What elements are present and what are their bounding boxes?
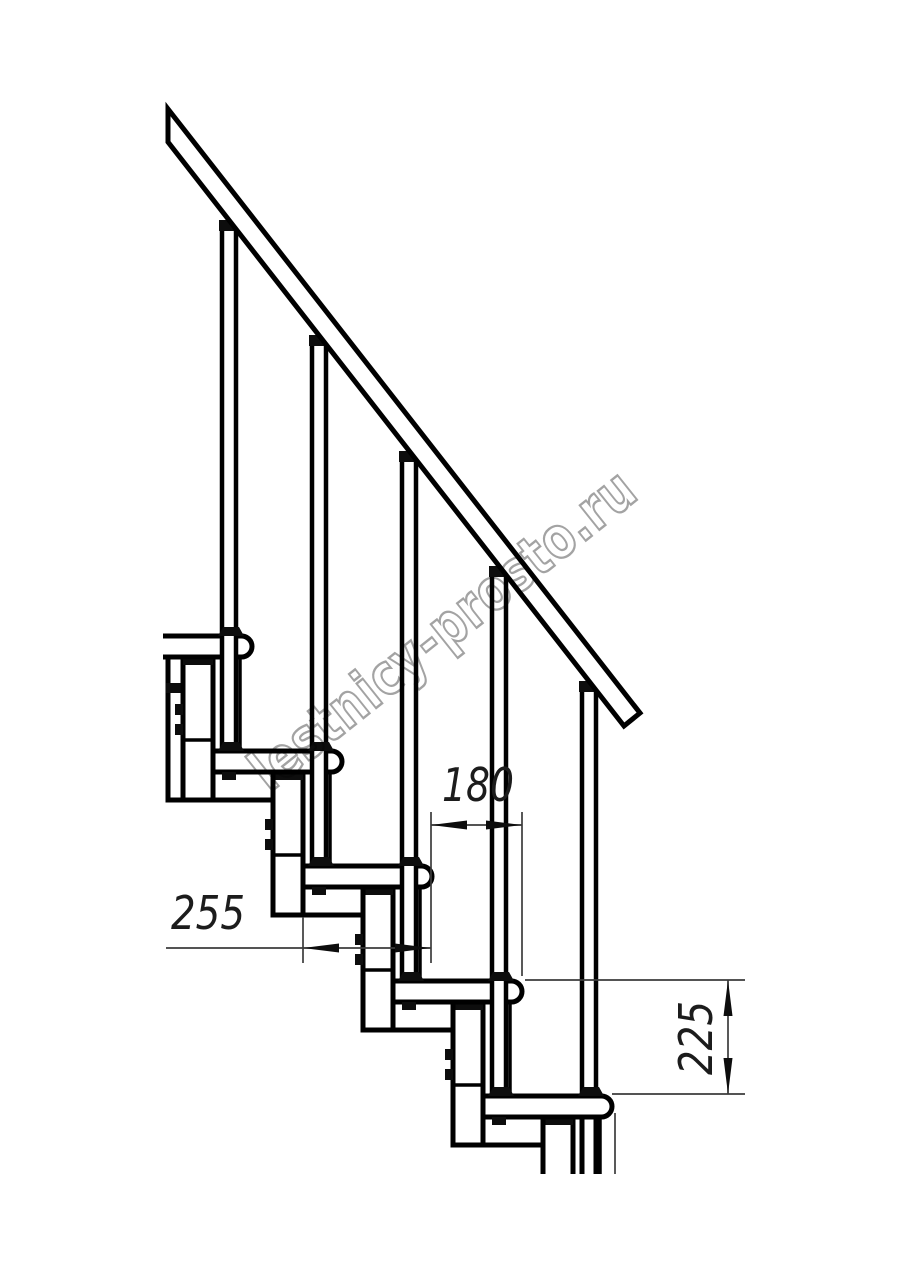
bolt-icon <box>265 819 273 830</box>
bolt-icon <box>265 839 273 850</box>
dimension-value-going: 180 <box>442 758 514 812</box>
rod-nut <box>222 772 236 780</box>
column-body <box>363 887 393 1030</box>
rod-nut <box>402 1002 416 1010</box>
tread-5 <box>483 1096 612 1117</box>
baluster-rod <box>582 685 596 1096</box>
column-body <box>453 1002 483 1145</box>
arrow-left-icon <box>303 944 339 953</box>
baluster-2 <box>308 335 334 895</box>
rod-nut <box>312 887 326 895</box>
bolt-icon <box>445 1069 453 1080</box>
bolt-icon <box>445 1049 453 1060</box>
technical-drawing-page: 180 255 225 lestnicy-prosto.ru <box>0 0 914 1280</box>
bolt-icon <box>355 934 363 945</box>
dimension-value-tread-depth: 255 <box>171 886 245 940</box>
arrow-up-icon <box>724 980 733 1016</box>
support-column-1 <box>175 657 213 800</box>
dimension-going: 180 <box>431 758 522 976</box>
dimension-value-step-rise: 225 <box>669 1001 723 1075</box>
bolt-icon <box>355 954 363 965</box>
baluster-1 <box>218 220 244 780</box>
bolt-icon <box>175 724 183 735</box>
baluster-rod <box>402 455 416 981</box>
arrow-down-icon <box>724 1058 733 1094</box>
baluster-3 <box>398 451 424 1010</box>
baluster-rod <box>312 339 326 866</box>
dimension-step-rise: 225 <box>525 980 745 1094</box>
baluster-4 <box>488 566 514 1125</box>
bolt-icon <box>175 704 183 715</box>
baluster-rod <box>492 570 506 1096</box>
column-body <box>183 657 213 800</box>
support-column-5 <box>543 1117 573 1174</box>
rod-nut <box>492 1117 506 1125</box>
tread-1 <box>163 636 252 657</box>
baluster-rod <box>222 224 236 751</box>
arrow-left-icon <box>431 821 467 830</box>
staircase-drawing-canvas: 180 255 225 lestnicy-prosto.ru <box>0 0 914 1280</box>
